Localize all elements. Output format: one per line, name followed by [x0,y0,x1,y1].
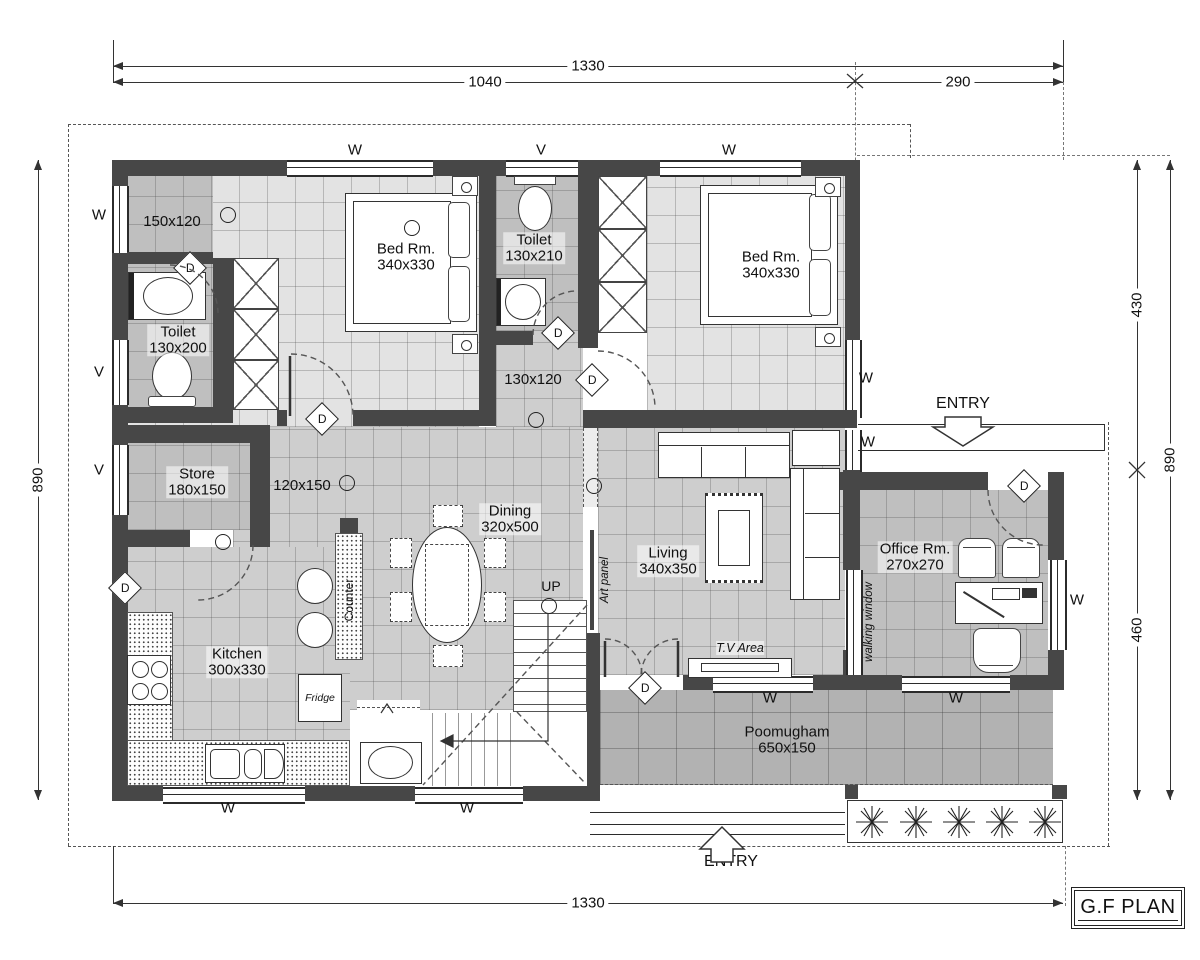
counter-label: Counter [342,579,356,622]
toilet1-wc-base [148,396,196,407]
stair-upper-run [513,600,587,712]
circle-marker [220,207,236,223]
dining-chair [390,538,412,568]
circle-marker [528,412,544,428]
arrowhead [1053,899,1063,907]
pillar-poomugham-1 [845,785,858,799]
circle-marker [404,220,420,236]
centerline-top-right [857,155,1170,156]
circle-marker [215,534,231,550]
window-marker: W [859,370,873,387]
office-desk [955,582,1043,624]
sofa-seat-line [745,447,746,477]
poomugham-open-edge [600,784,1053,785]
wall-store-right [250,425,270,547]
label-toilet1: Toilet130x200 [147,324,209,356]
window-marker: W [348,142,362,159]
label-bed2: Bed Rm.340x330 [740,249,802,281]
circle-marker [586,478,602,494]
arrowhead [1053,62,1063,70]
sofa-top [658,432,790,478]
dining-chair [484,538,506,568]
understair-dash [357,707,420,708]
porch-right-line [858,450,1105,451]
walking-window [846,570,863,675]
entry-step [590,834,845,835]
wardrobe1-cell [233,309,279,360]
label-toilet2: Toilet130x210 [503,232,565,264]
entry-label-bottom: ENTRY [704,853,758,871]
vent-left-1 [112,340,129,405]
sofa-seat-line [805,513,839,514]
window-left-w [112,186,129,253]
centerline-bottom-right [1065,846,1066,906]
window-top-1 [287,160,433,177]
chair-line [1007,547,1035,548]
dim-right-upper: 430 [1129,288,1146,321]
table-knob [461,182,472,193]
wardrobe1-cell [233,258,279,309]
up-label: UP [541,578,560,594]
label-bed1: Bed Rm.340x330 [375,241,437,273]
toilet1-wc [152,352,192,400]
kitchen-stool [297,568,333,604]
wall-left-2 [112,253,128,340]
dim-top-overall: 1330 [567,58,608,75]
desk-item [992,588,1020,600]
wall-store-bottom [112,530,190,547]
wall-left-1 [112,160,128,186]
open-passage-dashed [583,428,598,507]
side-table [815,177,841,197]
chair-line [979,665,1013,666]
dim-guide [113,846,114,903]
dim-line-right-outer [1170,160,1171,800]
stove [127,655,171,705]
window-marker: W [861,434,875,451]
burner [151,661,168,678]
plan-title-box: G.F PLAN [1074,890,1182,926]
boundary-top-corner [910,124,911,158]
label-dining: Dining320x500 [479,503,541,535]
boundary-bottom [68,846,1110,847]
dim-top-left: 1040 [464,74,505,91]
arrowhead [1166,160,1174,170]
sofa-back-line [803,469,804,599]
side-table [452,334,478,354]
corner-table [792,430,840,466]
vent-marker: V [536,142,546,159]
tv-unit [688,658,792,678]
window-marker: W [221,800,235,817]
basin-counter-edge [497,279,501,325]
side-table [815,327,841,347]
burner [132,661,149,678]
fridge-label: Fridge [305,692,335,704]
art-panel-label: Art panel [599,557,611,603]
desk-item-dark [1022,588,1037,598]
wall-top-1 [112,160,287,176]
wall-bottom-1 [112,786,163,801]
toilet2-wc-tank [514,176,556,185]
vent-top [506,160,582,177]
side-table [452,176,478,196]
arrowhead [1053,78,1063,86]
wall-toilet2-bottom [479,331,533,345]
counter-end-block [340,518,358,533]
wall-office-left [843,470,860,570]
table-knob [824,333,835,344]
sofa-seat-line [805,557,839,558]
tv-area-label: T.V Area [716,641,764,655]
pillar-poomugham-2 [1052,785,1067,799]
entry-arrow-right [933,417,993,446]
sofa-back-line [659,445,789,446]
porch-right-end [1104,424,1105,451]
label-living: Living340x350 [637,545,699,577]
wall-living-bottom-2 [813,675,902,690]
chair-line [963,547,991,548]
wardrobe2-cell [598,176,647,229]
kitchen-stool [297,612,333,648]
kitchen-sink [205,744,285,783]
dining-table-inner [425,544,469,626]
wall-toilet2-right [578,160,598,348]
sink-basin [244,749,262,779]
dining-chair [433,505,463,527]
wall-toilet1-bottom [127,407,233,423]
dim-bottom-overall: 1330 [567,895,608,912]
fridge: Fridge [298,674,342,722]
wall-hall-living [583,410,857,428]
walking-window-label: walking window [863,582,875,662]
wall-office-right-1 [1048,472,1064,560]
wall-right-top [845,160,860,340]
arrowhead [1133,160,1141,170]
plan-title: G.F PLAN [1078,896,1177,921]
dining-chair [390,592,412,622]
dim-top-right: 290 [941,74,974,91]
window-marker: W [763,690,777,707]
boundary-right [1108,422,1109,846]
office-chair [973,628,1021,673]
window-marker: W [92,207,106,224]
label-passage-lobby: 130x120 [502,372,564,388]
dim-left-overall: 890 [30,463,47,496]
window-marker: W [1070,592,1084,609]
dim-line-right-inner [1137,160,1138,800]
wall-stair-right [587,633,600,800]
label-passage-foyer: 150x120 [141,214,203,230]
pillow [448,266,470,322]
window-marker: W [722,142,736,159]
basin [505,284,541,320]
arrowhead [34,160,42,170]
window-office-right [1050,560,1067,650]
table-knob [461,340,472,351]
boundary-top [68,124,910,125]
pillow [448,202,470,258]
window-marker: W [460,800,474,817]
toilet2-basin-box [496,278,546,326]
vent-marker: V [94,462,104,479]
wardrobe1-cell [233,360,279,410]
dining-table [412,527,482,643]
up-circle [541,598,557,614]
wall-bottom-2 [305,786,415,801]
wardrobe2-cell [598,282,647,333]
dim-guide [113,40,114,82]
label-store: Store180x150 [166,466,228,498]
wash-basin [368,746,413,779]
rug-inner [718,510,750,566]
entry-step [590,824,845,825]
wall-toilet2-left [479,160,496,426]
dining-chair [484,592,506,622]
wardrobe2-cell [598,229,647,282]
art-panel-line [590,530,594,630]
tv-screen [701,663,779,672]
table-knob [824,183,835,194]
arrowhead [34,790,42,800]
visitor-chair [1002,538,1040,578]
burner [132,683,149,700]
wall-left-4 [112,515,128,800]
wall-bed1-bottom [353,410,479,426]
porch-right-line [858,424,1105,425]
dim-right-lower: 460 [1129,613,1146,646]
label-kitchen: Kitchen300x330 [206,646,268,678]
wall-bed1-stub [277,410,287,426]
arrowhead [113,78,123,86]
toilet2-wc [518,186,552,231]
entry-label-right: ENTRY [936,395,990,413]
planter-box [847,800,1063,843]
dish-rack [264,749,284,779]
circle-marker [339,475,355,491]
arrowhead [1166,790,1174,800]
boundary-left [68,124,69,846]
sofa-seat-line [701,447,702,477]
stair-diagonal-2 [517,712,585,783]
label-office: Office Rm.270x270 [878,541,953,573]
sink-basin [210,749,240,779]
burner [151,683,168,700]
dim-guide [1063,40,1064,82]
pillow [809,194,831,251]
arrowhead [113,899,123,907]
rug [705,493,763,583]
vent-left-2 [112,445,129,515]
label-poomugham: Poomugham650x150 [742,724,831,756]
stair-lower-run [420,713,513,786]
basin-counter-edge [129,273,134,319]
dim-line-top-left [113,82,1063,83]
window-living-porch [845,430,862,472]
wall-living-bottom-3 [1010,675,1064,690]
dim-right-overall: 890 [1162,443,1179,476]
arrowhead [1133,790,1141,800]
pillow [809,259,831,316]
basin [143,277,193,315]
window-top-2 [660,160,801,177]
floor-plan-canvas: Fridge Counter UP T.V Area Art panel wal… [0,0,1200,960]
window-marker: W [949,690,963,707]
wall-store-top [112,425,270,443]
dining-chair [433,645,463,667]
vent-marker: V [94,364,104,381]
arrowhead [113,62,123,70]
sofa-right [790,468,840,600]
wall-wardrobe1-left [213,258,233,423]
label-passage-hall: 120x150 [271,478,333,494]
entry-step [590,812,845,813]
visitor-chair [958,538,996,578]
